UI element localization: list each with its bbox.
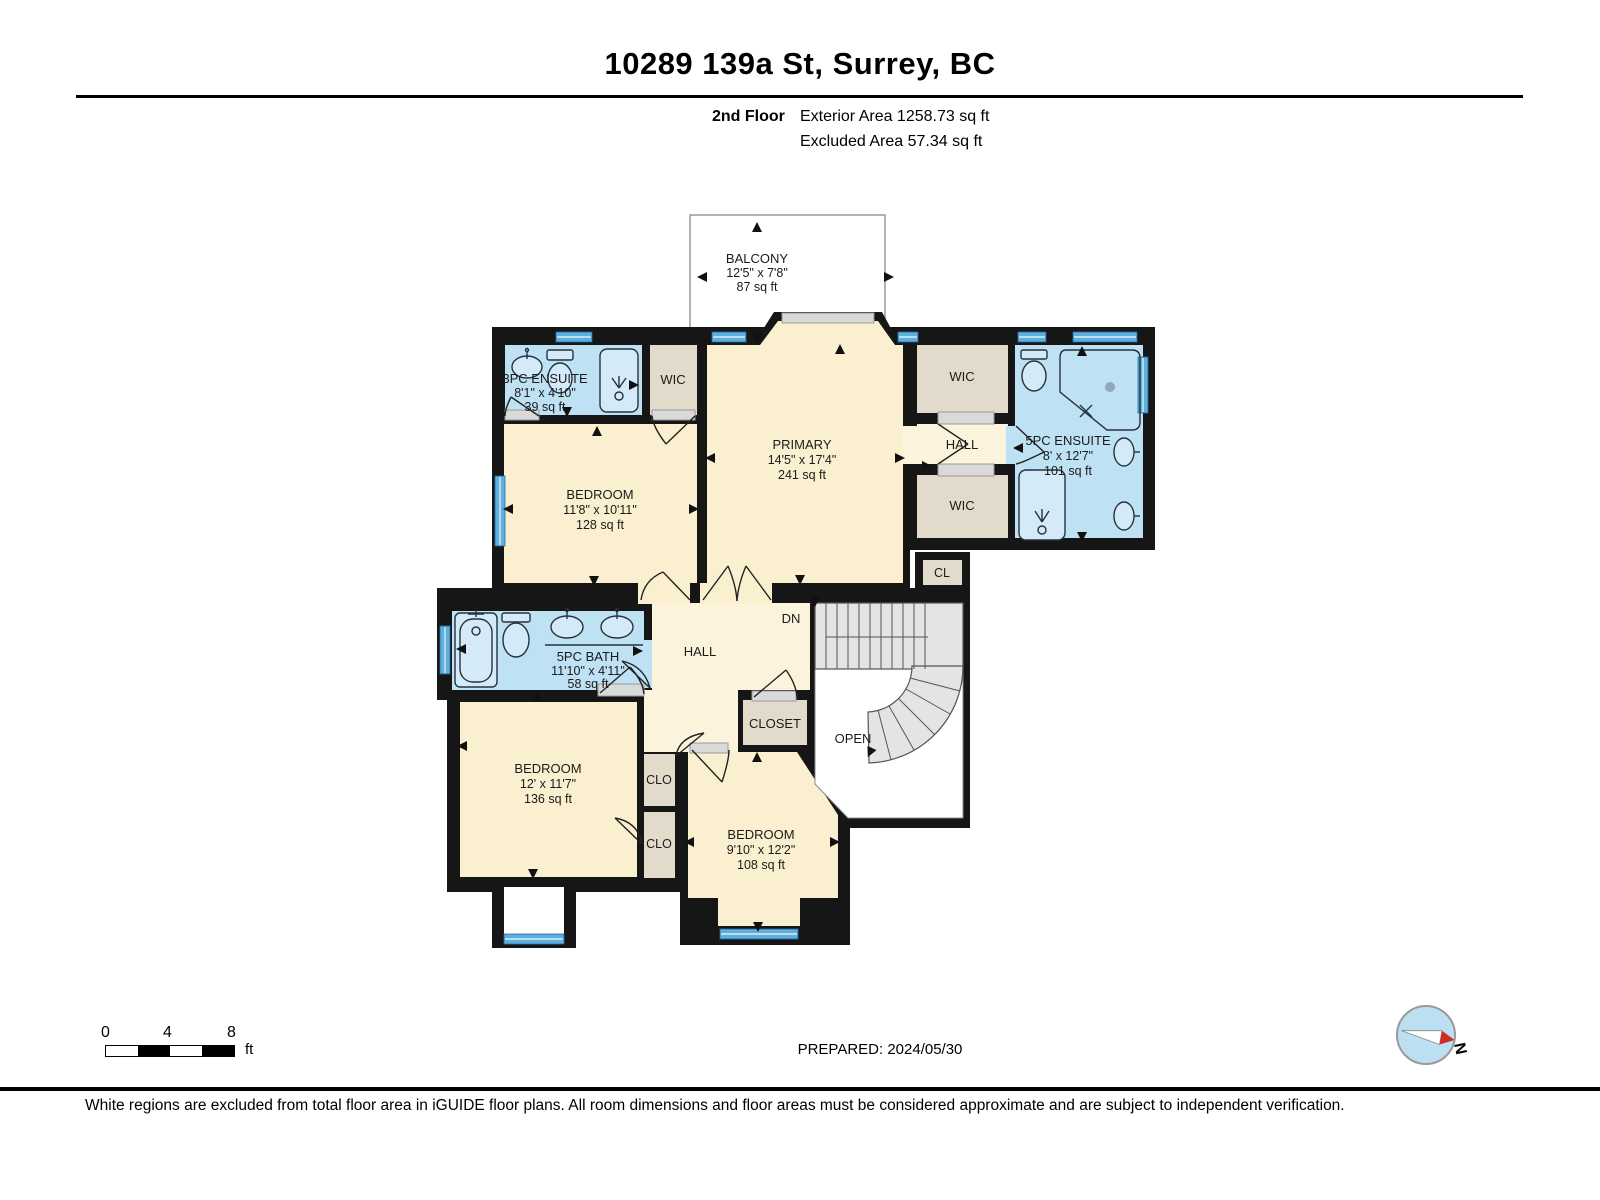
- scale-bar-segments: [105, 1045, 235, 1057]
- bedroom-top-left-label: BEDROOM: [566, 487, 633, 502]
- ensuite3-label: 3PC ENSUITE: [502, 371, 588, 386]
- bedroom-bottom-left-dims: 12' x 11'7": [520, 777, 576, 791]
- excluded-nook: [504, 887, 564, 940]
- bedroom-bottom-mid-label: BEDROOM: [727, 827, 794, 842]
- clo-bottom-label: CLO: [646, 837, 672, 851]
- bedroom-bottom-mid-dims: 9'10" x 12'2": [727, 843, 796, 857]
- bath5-area: 58 sq ft: [568, 677, 610, 691]
- compass-north-label: N: [1450, 1041, 1469, 1056]
- toilet-icon: [1021, 350, 1047, 359]
- toilet-icon: [547, 350, 573, 360]
- sink-icon: [601, 616, 633, 638]
- disclaimer-text: White regions are excluded from total fl…: [85, 1097, 1345, 1115]
- toilet-icon: [502, 613, 530, 622]
- balcony-area: 87 sq ft: [737, 280, 779, 294]
- open-label: OPEN: [835, 731, 872, 746]
- bedroom-bottom-left-area: 136 sq ft: [524, 792, 572, 806]
- ensuite5-dims: 8' x 12'7": [1043, 449, 1093, 463]
- bath5-label: 5PC BATH: [557, 649, 620, 664]
- wic-top-left-label: WIC: [660, 372, 685, 387]
- ensuite5-label: 5PC ENSUITE: [1025, 433, 1111, 448]
- ensuite5-area: 101 sq ft: [1044, 464, 1092, 478]
- scale-bar: 0 4 8 ft: [105, 1024, 275, 1064]
- floor-plan-drawing: BALCONY 12'5" x 7'8" 87 sq ft 3PC ENSUIT…: [0, 0, 1600, 1200]
- bedroom-bottom-left-label: BEDROOM: [514, 761, 581, 776]
- primary-dims: 14'5" x 17'4": [768, 453, 837, 467]
- wic-right-top-label: WIC: [949, 369, 974, 384]
- floor-plan-page: 10289 139a St, Surrey, BC 2nd Floor Exte…: [0, 0, 1600, 1200]
- bedroom-top-left-area: 128 sq ft: [576, 518, 624, 532]
- wic-right-bottom-label: WIC: [949, 498, 974, 513]
- sink-icon: [551, 616, 583, 638]
- balcony-label: BALCONY: [726, 251, 788, 266]
- bath5-dims: 11'10" x 4'11": [551, 664, 625, 678]
- stairs-dn-label: DN: [782, 611, 801, 626]
- scale-tick-0: 0: [101, 1024, 110, 1042]
- hall-right-label: HALL: [946, 437, 979, 452]
- footer-divider: [0, 1087, 1600, 1091]
- scale-tick-4: 4: [163, 1024, 172, 1042]
- sink-icon: [1114, 438, 1134, 466]
- shower-icon: [1019, 470, 1065, 540]
- balcony-dims: 12'5" x 7'8": [726, 266, 788, 280]
- clo-top-label: CLO: [646, 773, 672, 787]
- scale-unit: ft: [245, 1041, 253, 1058]
- cl-label: CL: [934, 566, 950, 580]
- ensuite3-area: 39 sq ft: [525, 400, 567, 414]
- primary-label: PRIMARY: [773, 437, 832, 452]
- prepared-date: PREPARED: 2024/05/30: [798, 1041, 963, 1058]
- balcony-door-threshold: [782, 313, 874, 323]
- primary-area: 241 sq ft: [778, 468, 826, 482]
- closet-label: CLOSET: [749, 716, 801, 731]
- room-primary: [707, 321, 903, 583]
- ensuite3-dims: 8'1" x 4'10": [514, 386, 576, 400]
- sink-icon: [1114, 502, 1134, 530]
- scale-tick-8: 8: [227, 1024, 236, 1042]
- bedroom-bottom-mid-area: 108 sq ft: [737, 858, 785, 872]
- compass-icon: N: [1393, 1000, 1473, 1074]
- hall-center-label: HALL: [684, 644, 717, 659]
- bedroom-top-left-dims: 11'8" x 10'11": [563, 503, 637, 517]
